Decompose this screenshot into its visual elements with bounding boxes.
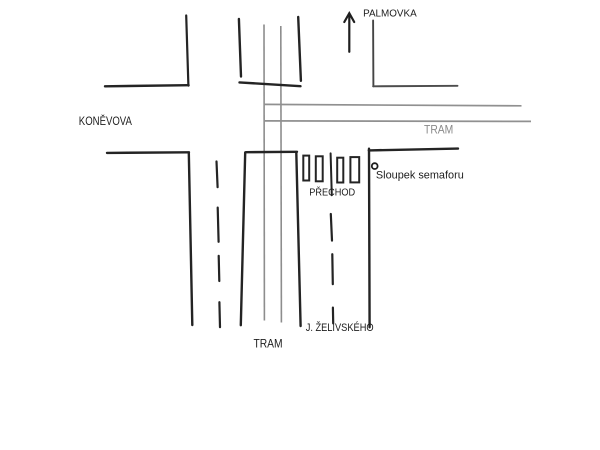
svg-text:PŘECHOD: PŘECHOD bbox=[309, 186, 355, 199]
svg-text:TRAM: TRAM bbox=[424, 123, 453, 137]
svg-text:J. ŽELIVSKÉHO: J. ŽELIVSKÉHO bbox=[306, 321, 374, 334]
svg-text:Sloupek semaforu: Sloupek semaforu bbox=[376, 170, 464, 182]
svg-text:TRAM: TRAM bbox=[254, 338, 283, 351]
svg-text:KONĚVOVA: KONĚVOVA bbox=[79, 113, 133, 128]
svg-text:PALMOVKA: PALMOVKA bbox=[363, 9, 417, 20]
